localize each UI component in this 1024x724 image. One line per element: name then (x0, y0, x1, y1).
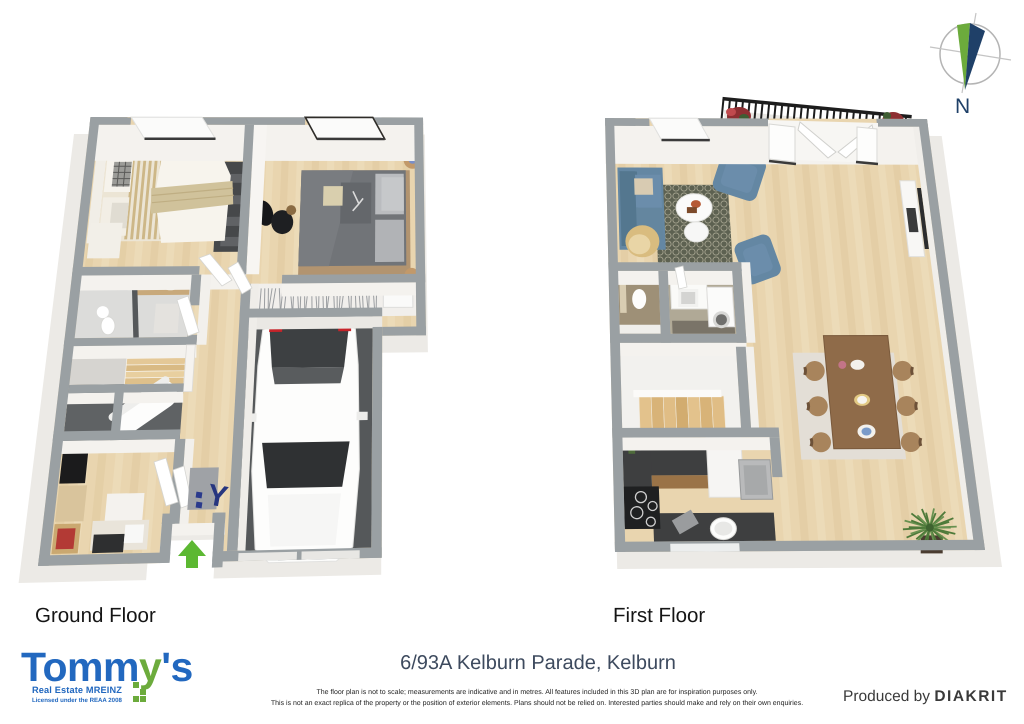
svg-text:The floor plan is not to scale: The floor plan is not to scale; measurem… (316, 688, 757, 696)
svg-text:Tommy's: Tommy's (21, 644, 193, 690)
svg-text:Real Estate MREINZ: Real Estate MREINZ (32, 685, 122, 695)
svg-text:6/93A Kelburn Parade, Kelburn: 6/93A Kelburn Parade, Kelburn (400, 652, 676, 674)
svg-text:Produced by DIAKRIT: Produced by DIAKRIT (843, 688, 1008, 705)
svg-text:N: N (955, 95, 970, 118)
svg-text:This is not an exact replica o: This is not an exact replica of the prop… (271, 699, 803, 707)
svg-text:First Floor: First Floor (613, 604, 705, 627)
svg-text:Licensed under the REAA 2008: Licensed under the REAA 2008 (32, 697, 122, 704)
svg-text:Ground Floor: Ground Floor (35, 604, 156, 627)
